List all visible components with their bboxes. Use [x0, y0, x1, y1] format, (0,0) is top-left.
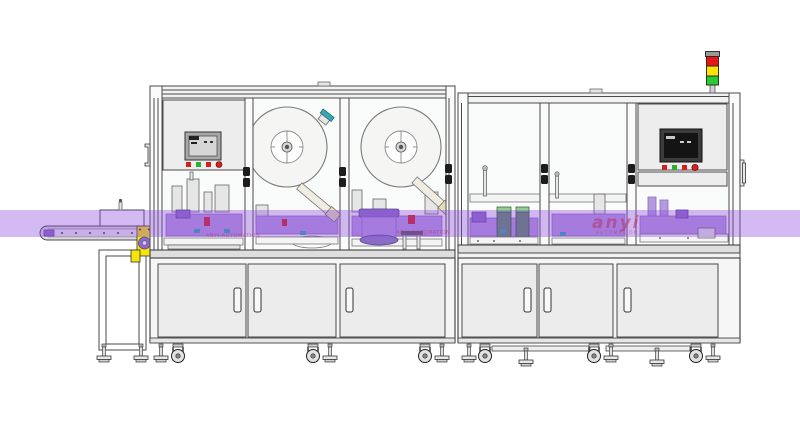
- right-door-handle: [740, 160, 746, 186]
- door-handle: [346, 288, 353, 312]
- conveyor-sensor-tip: [119, 199, 122, 202]
- door-handle: [234, 288, 241, 312]
- guard-bracket: [131, 250, 140, 262]
- lifting-tab: [590, 89, 602, 93]
- tower-pole: [710, 85, 715, 93]
- left-door-handle: [145, 144, 150, 166]
- right-panel-strip: [638, 172, 727, 186]
- right-machine-feet: [462, 344, 720, 366]
- left-machine-cabinet: [150, 258, 455, 343]
- cabinet-door: [340, 264, 445, 337]
- left-machine-feet: [154, 344, 449, 363]
- right-machine: [458, 52, 746, 367]
- tower-light-red: [707, 56, 719, 66]
- tower-cap: [706, 52, 720, 57]
- tower-light-yellow: [707, 66, 719, 76]
- door-handle: [544, 288, 551, 312]
- tower-light-green: [707, 76, 719, 85]
- sub-frame-rail: [606, 346, 690, 351]
- conveyor-stand: [97, 250, 148, 362]
- machine-illustration: ANYI AUTOMATION ANYI AUTOMATION anyi AUT…: [0, 0, 800, 438]
- right-machine-cabinet: [458, 258, 740, 343]
- door-handle: [624, 288, 631, 312]
- highlight-band-overlay: [0, 210, 800, 237]
- door-handle: [254, 288, 261, 312]
- sub-frame-rail: [492, 346, 590, 351]
- cabinet-door: [158, 264, 246, 337]
- right-hmi-panel: [638, 104, 727, 186]
- cabinet-door: [617, 264, 718, 337]
- left-hmi-panel: [163, 100, 245, 170]
- signal-tower: [706, 52, 720, 94]
- machine-line-drawing: ANYI AUTOMATION ANYI AUTOMATION anyi AUT…: [0, 0, 800, 438]
- conveyor-sensor-post: [119, 202, 122, 210]
- door-handle: [524, 288, 531, 312]
- lifting-tab: [318, 82, 330, 86]
